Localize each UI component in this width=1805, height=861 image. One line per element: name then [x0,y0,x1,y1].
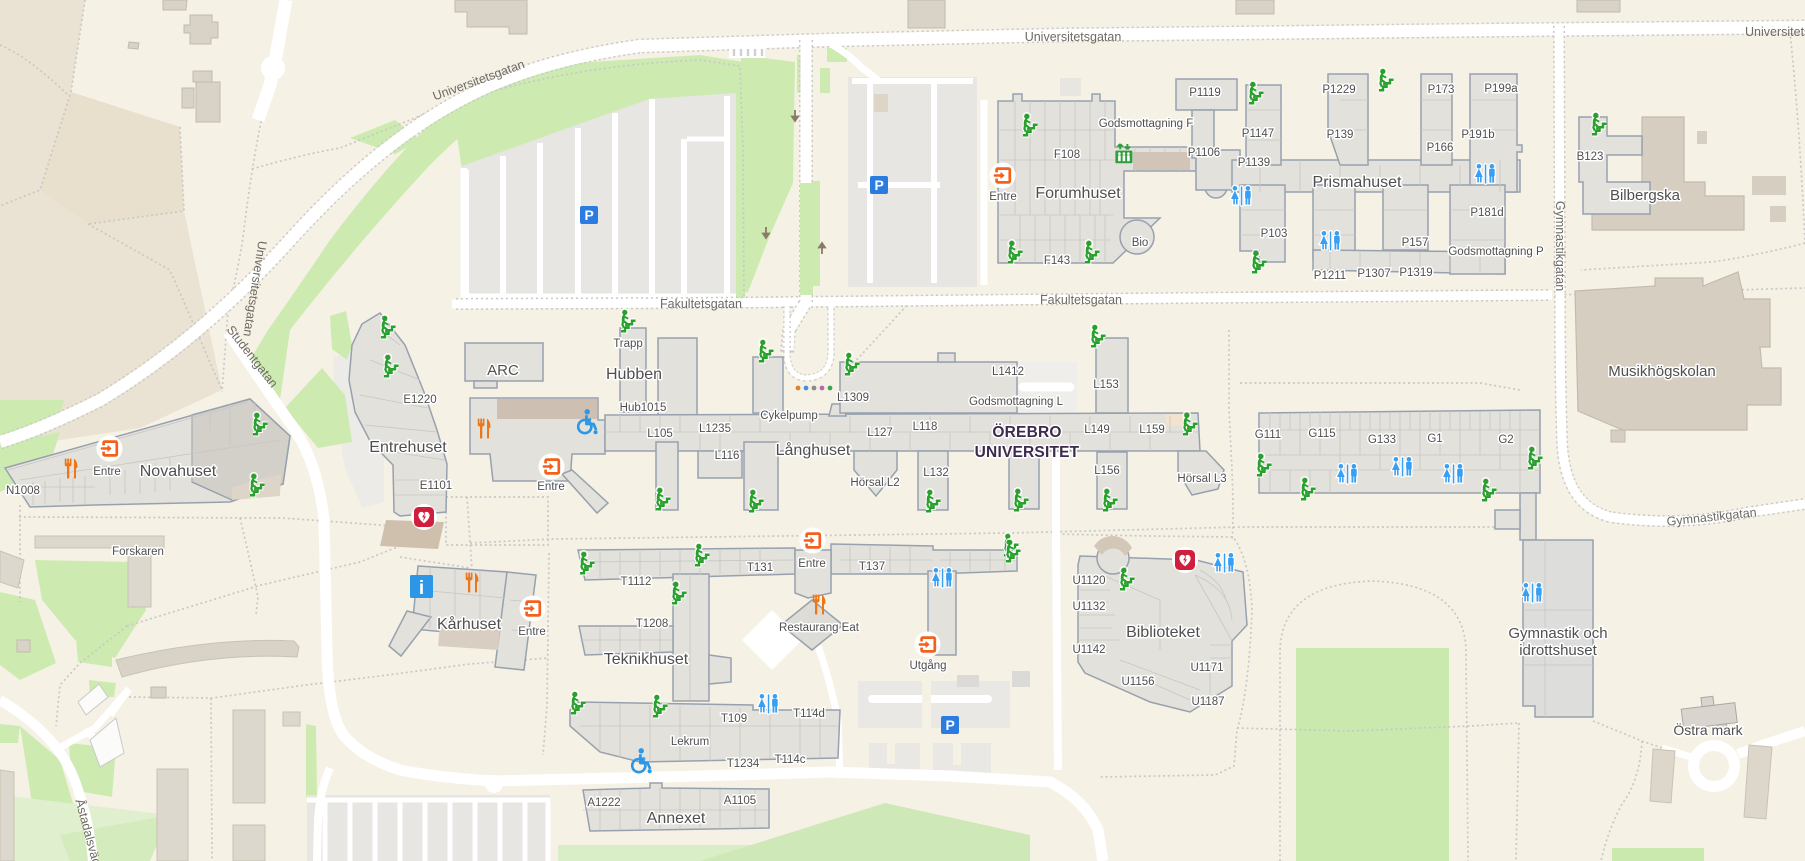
svg-text:P157: P157 [1402,237,1429,249]
svg-text:Entre: Entre [798,558,826,570]
svg-text:T114c: T114c [774,754,805,766]
svg-text:Entre: Entre [537,481,565,493]
svg-text:L127: L127 [867,427,893,439]
svg-text:G133: G133 [1368,434,1396,446]
svg-text:Fakultetsgatan: Fakultetsgatan [1040,293,1122,307]
svg-text:Gymnastikgatan: Gymnastikgatan [1553,201,1567,291]
svg-text:Universitetsgatan: Universitetsgatan [1025,30,1122,44]
svg-text:idrottshuset: idrottshuset [1519,642,1597,659]
svg-text:L153: L153 [1093,379,1119,391]
svg-text:L156: L156 [1094,465,1120,477]
svg-text:Restaurang Eat: Restaurang Eat [779,622,860,634]
svg-text:L132: L132 [923,467,949,479]
svg-text:Hubben: Hubben [606,366,662,383]
svg-text:G1: G1 [1427,433,1442,445]
svg-text:Entre: Entre [989,191,1017,203]
svg-text:T131: T131 [747,562,773,574]
svg-text:B123: B123 [1577,151,1604,163]
svg-text:F143: F143 [1044,255,1070,267]
svg-text:Annexet: Annexet [647,810,706,827]
svg-text:Kårhuset: Kårhuset [437,615,502,633]
svg-text:Gymnastik och: Gymnastik och [1508,625,1607,642]
svg-text:Trapp: Trapp [613,338,643,350]
svg-text:Bio: Bio [1132,237,1149,249]
svg-text:U1142: U1142 [1072,644,1105,656]
svg-text:E1101: E1101 [420,480,452,492]
svg-text:U1156: U1156 [1121,676,1154,688]
svg-text:U1132: U1132 [1072,601,1105,613]
svg-text:T114d: T114d [793,708,825,720]
svg-text:Musikhögskolan: Musikhögskolan [1608,363,1716,380]
svg-text:Lekrum: Lekrum [671,736,709,748]
svg-text:T137: T137 [859,561,885,573]
svg-text:N1008: N1008 [6,485,40,497]
svg-text:Fakultetsgatan: Fakultetsgatan [660,297,742,311]
svg-text:Biblioteket: Biblioteket [1126,624,1200,641]
svg-text:A1105: A1105 [724,795,756,807]
svg-text:F108: F108 [1054,149,1080,161]
svg-text:L149: L149 [1084,424,1110,436]
svg-text:P191b: P191b [1461,129,1494,141]
svg-text:Hörsal L3: Hörsal L3 [1177,473,1226,485]
svg-text:P181d: P181d [1470,207,1503,219]
svg-text:Prismahuset: Prismahuset [1313,174,1402,191]
svg-text:Hub1015: Hub1015 [620,402,667,414]
svg-text:P1147: P1147 [1242,128,1274,140]
svg-text:Långhuset: Långhuset [776,441,851,459]
svg-text:L118: L118 [913,421,938,433]
svg-text:T1234: T1234 [727,758,760,770]
svg-text:P173: P173 [1428,84,1455,96]
svg-text:G115: G115 [1308,428,1335,440]
svg-text:Forskaren: Forskaren [112,546,164,558]
svg-text:Godsmottagning L: Godsmottagning L [969,396,1064,408]
svg-text:Godsmottagning F: Godsmottagning F [1099,118,1194,130]
svg-text:L116: L116 [715,450,740,462]
svg-text:U1120: U1120 [1072,575,1105,587]
svg-text:P166: P166 [1427,142,1454,154]
svg-text:P139: P139 [1327,129,1354,141]
svg-text:Godsmottagning P: Godsmottagning P [1448,246,1544,258]
svg-text:P1106: P1106 [1188,147,1220,159]
svg-text:L1235: L1235 [699,423,731,435]
svg-text:T109: T109 [721,713,747,725]
svg-text:ARC: ARC [487,362,519,379]
svg-text:T1208: T1208 [636,618,669,630]
svg-text:Utgång: Utgång [909,660,946,672]
svg-text:L105: L105 [647,428,673,440]
svg-text:P1319: P1319 [1399,267,1432,279]
svg-text:Entrehuset: Entrehuset [369,439,447,456]
svg-text:E1220: E1220 [403,394,436,406]
svg-text:Entre: Entre [93,466,121,478]
svg-text:Forumhuset: Forumhuset [1035,185,1121,202]
svg-text:P1307: P1307 [1357,268,1390,280]
svg-text:Cykelpump: Cykelpump [760,410,818,422]
svg-text:L159: L159 [1139,424,1165,436]
svg-text:P1119: P1119 [1189,87,1221,99]
svg-text:P103: P103 [1261,228,1288,240]
svg-text:U1171: U1171 [1190,662,1223,674]
svg-text:Bilbergska: Bilbergska [1610,187,1681,204]
svg-text:U1187: U1187 [1191,696,1224,708]
svg-text:L1412: L1412 [992,366,1024,378]
svg-text:T1112: T1112 [621,576,652,588]
svg-text:Novahuset: Novahuset [140,463,217,480]
svg-text:P1229: P1229 [1322,84,1355,96]
svg-text:ÖREBRO: ÖREBRO [992,424,1061,441]
svg-text:Universitetsgatan: Universitetsgatan [1745,25,1805,39]
svg-text:UNIVERSITET: UNIVERSITET [975,444,1080,461]
svg-text:Hörsal L2: Hörsal L2 [850,477,899,489]
svg-text:Entre: Entre [518,626,546,638]
svg-text:Teknikhuset: Teknikhuset [604,651,689,668]
svg-text:G2: G2 [1498,434,1513,446]
svg-text:P1139: P1139 [1238,157,1270,169]
svg-text:P199a: P199a [1484,83,1518,95]
svg-text:Östra mark: Östra mark [1673,721,1743,738]
svg-text:G111: G111 [1255,429,1281,441]
svg-text:L1309: L1309 [837,392,869,404]
svg-text:A1222: A1222 [587,797,620,809]
svg-text:P1211: P1211 [1314,270,1346,282]
